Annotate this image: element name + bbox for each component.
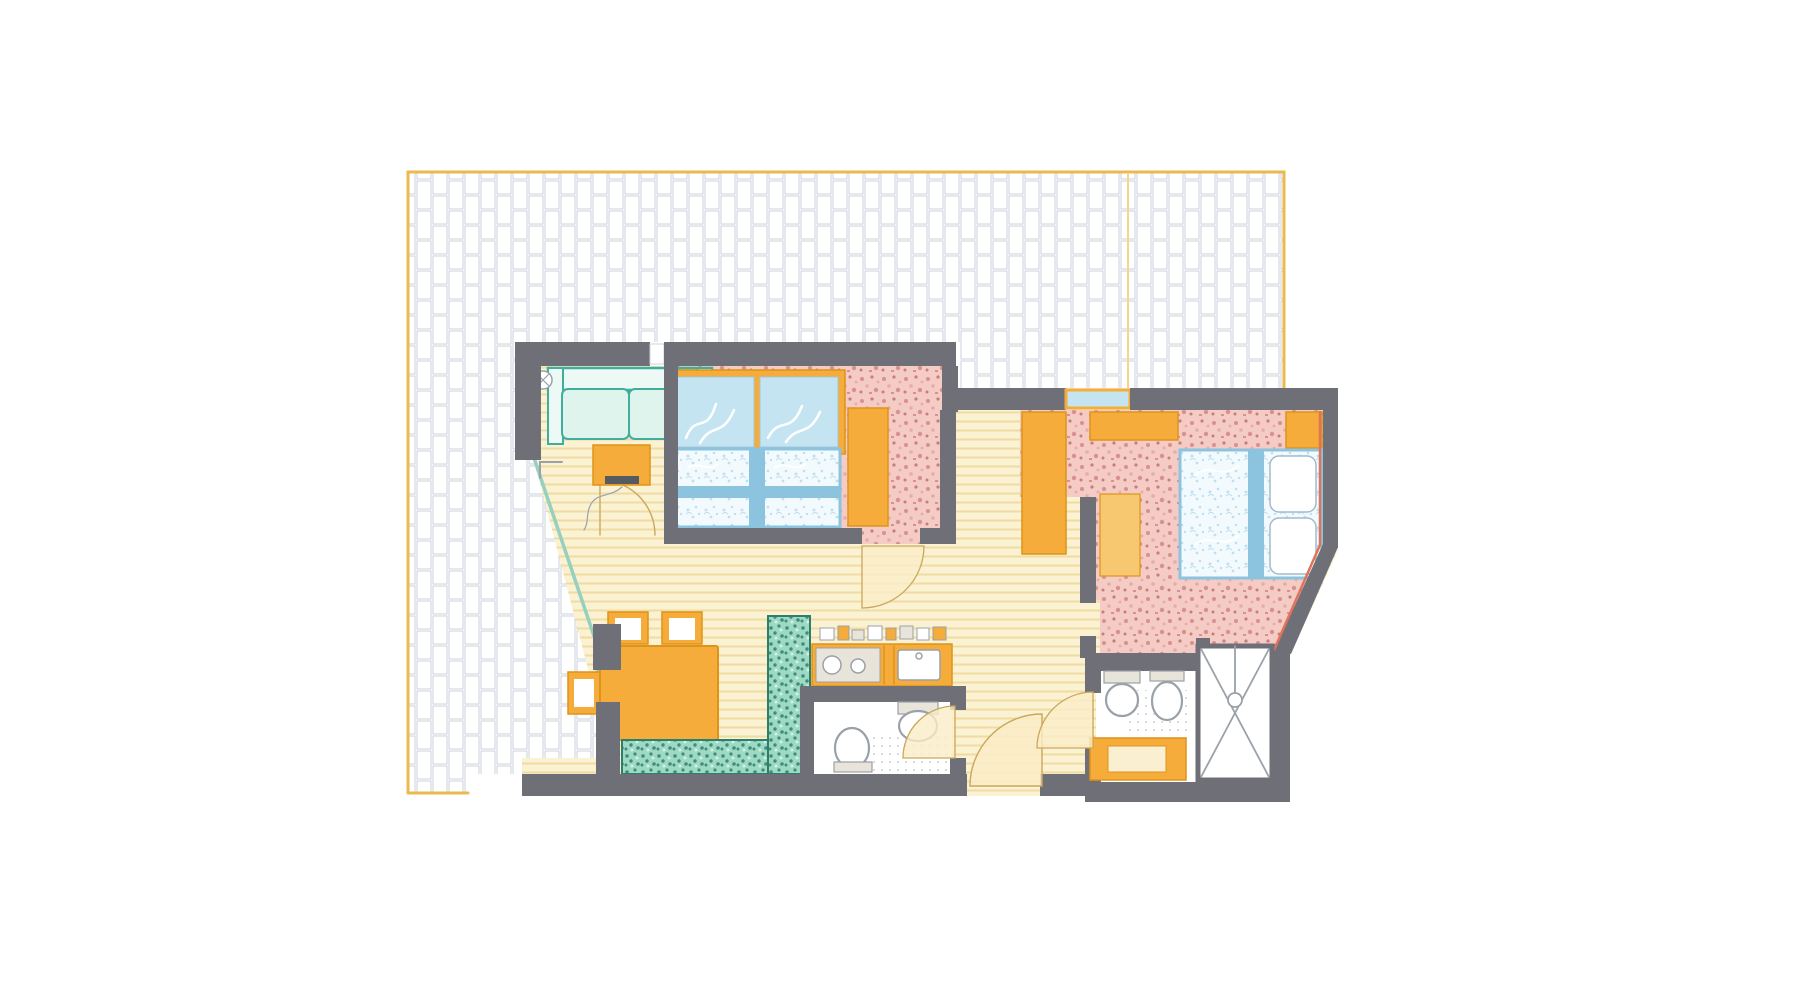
wall-entry-side bbox=[1040, 774, 1087, 796]
bedroom1-wardrobe bbox=[848, 408, 888, 526]
sofa-seat-cushion-1 bbox=[562, 389, 629, 439]
bathroom2-toilet-box bbox=[1150, 671, 1184, 681]
wall-bathroom1-left bbox=[800, 686, 814, 776]
wall-bathroom1-right-b bbox=[950, 758, 966, 774]
bathroom2-basin-box bbox=[1104, 671, 1140, 683]
kitchen-shelf-item-8 bbox=[933, 627, 946, 640]
bed2-pillow-2 bbox=[1270, 518, 1316, 574]
bathroom2-vanity-inner bbox=[1108, 746, 1166, 772]
kitchen-shelf-item-1 bbox=[820, 628, 834, 640]
window-top-small bbox=[650, 344, 664, 364]
bathroom1-toilet-tank bbox=[834, 762, 872, 772]
tv-screen bbox=[605, 476, 639, 484]
wall-bathroom2-bottom bbox=[1085, 782, 1290, 802]
window-terrace-right bbox=[1066, 390, 1130, 408]
wall-bathroom2-top bbox=[1088, 653, 1200, 671]
wall-bathroom2-left-a bbox=[1085, 653, 1101, 693]
bathroom2-basin-bowl bbox=[1106, 684, 1138, 716]
bedroom2-wardrobe bbox=[1022, 412, 1066, 554]
kitchen-shelf-item-7 bbox=[917, 628, 929, 640]
bathroom2-toilet-bowl bbox=[1152, 682, 1182, 720]
kitchen-shelf-item-2 bbox=[838, 626, 849, 640]
floor-plan-root bbox=[408, 172, 1338, 802]
wall-bedroom2-left bbox=[1080, 497, 1096, 603]
wall-bathroom1-top bbox=[810, 686, 956, 702]
kitchen-shelf-item-3 bbox=[852, 630, 864, 640]
bed1-horizontal-band bbox=[676, 486, 840, 498]
bedroom2-shelf bbox=[1090, 412, 1178, 440]
wall-right-upper bbox=[1323, 408, 1338, 548]
wall-top-bedroom1 bbox=[664, 342, 956, 366]
kitchen-shelf-item-6 bbox=[900, 626, 913, 639]
bed2-pillow-1 bbox=[1270, 456, 1316, 512]
floor-plan-drawing bbox=[0, 0, 1800, 1000]
floor-plan-page bbox=[0, 0, 1800, 1000]
bed2-vertical-band bbox=[1248, 450, 1264, 578]
kitchen-shelf-item-4 bbox=[868, 626, 882, 640]
wall-step-left bbox=[596, 702, 620, 776]
wall-bedroom1-bottom-a bbox=[664, 528, 862, 544]
dining-chair-2-seat bbox=[669, 618, 695, 640]
wall-bottom-main bbox=[522, 774, 967, 796]
shower-head bbox=[1228, 693, 1242, 707]
kitchen-shelf-item-5 bbox=[886, 628, 896, 640]
kitchen-pan-1 bbox=[823, 656, 841, 674]
wall-top-right-b bbox=[1130, 388, 1338, 410]
wall-right-lower bbox=[1274, 644, 1290, 796]
bedroom2-bench bbox=[1100, 494, 1140, 576]
wall-bedroom1-left bbox=[664, 342, 678, 544]
wall-top-right-a bbox=[942, 388, 1066, 410]
kitchen-pan-2 bbox=[851, 659, 865, 673]
wall-left-corner bbox=[515, 342, 541, 460]
wall-glass-pier bbox=[593, 624, 621, 670]
dining-chair-3-seat bbox=[574, 679, 594, 707]
kitchen-sink bbox=[898, 650, 940, 680]
bed1-pillow-pane-1 bbox=[677, 377, 754, 447]
wall-bedroom1-right bbox=[940, 410, 956, 544]
bedroom2-corner-shelf bbox=[1286, 412, 1322, 448]
